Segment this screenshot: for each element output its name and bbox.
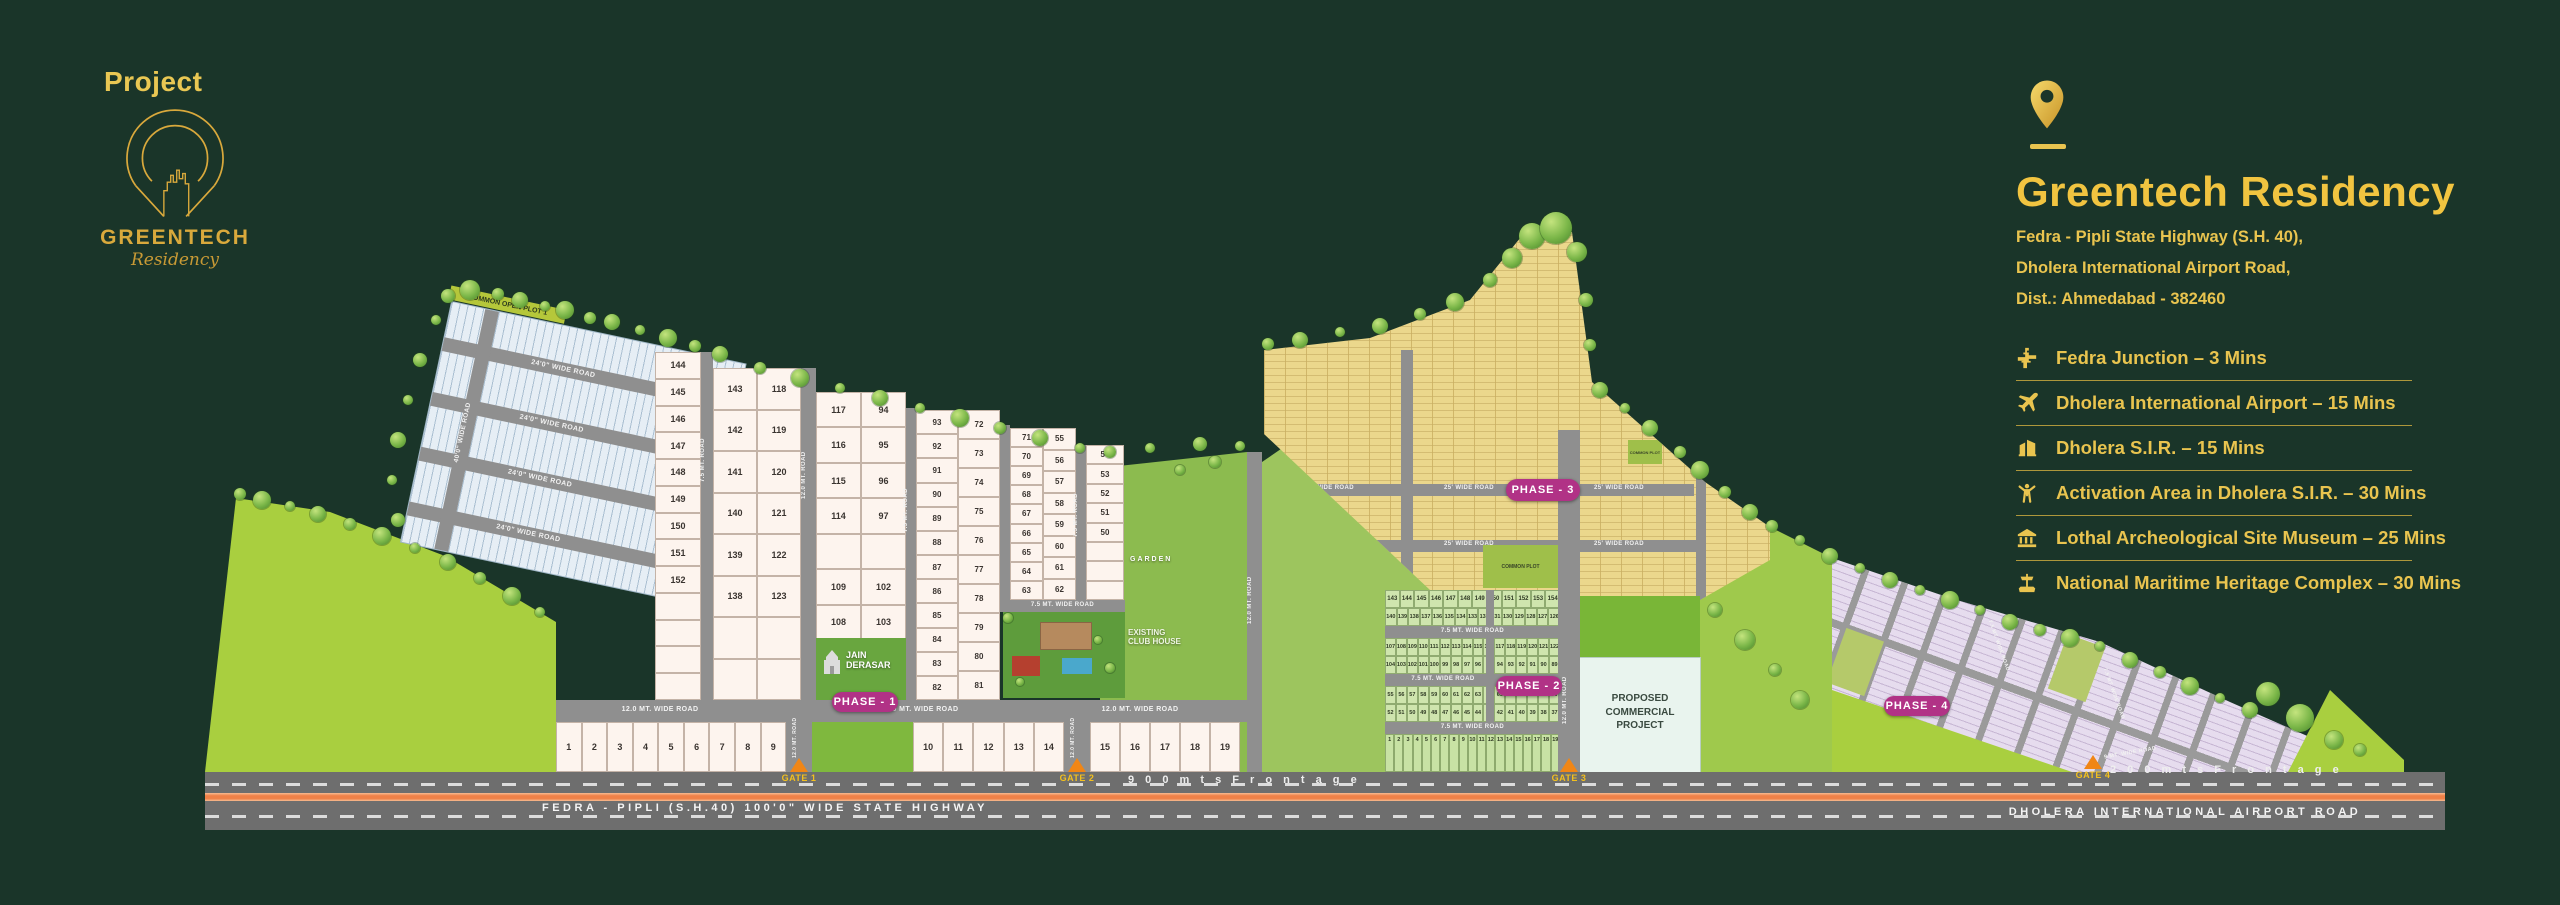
- road-label: 7.5 MT. ROAD: [1073, 480, 1087, 550]
- plot-cell: 78: [958, 584, 1000, 613]
- tree-icon: [535, 607, 545, 617]
- plot-cell: 149: [1472, 590, 1487, 608]
- plot-cell: 127: [1537, 608, 1549, 626]
- plot-cell: [861, 534, 906, 569]
- tree-icon: [1592, 382, 1608, 398]
- phase-4-badge: PHASE - 4: [1884, 696, 1950, 716]
- tree-icon: [1483, 273, 1497, 287]
- plot-column: 117116115114109108: [816, 392, 861, 640]
- plot-cell: 116: [816, 427, 861, 462]
- common-plot-zone: COMMON PLOT: [1628, 440, 1662, 464]
- plot-cell: 15: [1090, 722, 1120, 772]
- plot-cell: 138: [1408, 608, 1420, 626]
- tree-icon: [1414, 308, 1426, 320]
- tree-icon: [1209, 456, 1221, 468]
- plot-cell: 13: [1495, 734, 1504, 772]
- tree-icon: [1584, 339, 1596, 351]
- median-strip: [205, 793, 2445, 801]
- tree-icon: [1235, 441, 1245, 451]
- plot-cell: 117: [816, 392, 861, 427]
- plot-cell: 77: [958, 555, 1000, 584]
- road-label: 7.5 MT. WIDE ROAD: [1395, 724, 1550, 738]
- plot-cell: 96: [861, 463, 906, 498]
- plot-cell: 38: [1538, 704, 1549, 722]
- plot-cell: 89: [916, 507, 958, 531]
- plot-cell: 102: [1407, 656, 1418, 674]
- tree-icon: [994, 422, 1006, 434]
- plot-cell: 83: [916, 652, 958, 676]
- gate-1-label: GATE 1: [775, 773, 823, 783]
- plot-cell: 128: [1525, 608, 1537, 626]
- plot-cell: 3: [607, 722, 633, 772]
- tree-icon: [1791, 691, 1809, 709]
- plot-cell: 147: [1443, 590, 1458, 608]
- plot-cell: 13: [1004, 722, 1034, 772]
- plot-cell: 56: [1043, 450, 1076, 472]
- plot-cell: [757, 659, 801, 701]
- tree-icon: [1105, 663, 1115, 673]
- gate-3-label: GATE 3: [1545, 773, 1593, 783]
- tree-icon: [2181, 677, 2199, 695]
- plot-cell: 119: [757, 410, 801, 452]
- gate-4-icon: [2084, 755, 2102, 769]
- plot-cell: 103: [861, 605, 906, 640]
- tree-icon: [441, 289, 455, 303]
- plot-row: 1516171819: [1090, 722, 1240, 772]
- tree-icon: [403, 395, 413, 405]
- list-item-label: Dholera S.I.R. – 15 Mins: [2056, 437, 2265, 459]
- plot-cell: 143: [713, 368, 757, 410]
- gate-2-icon: [1068, 758, 1086, 772]
- project-label: Project: [104, 66, 202, 98]
- list-item-sir: Dholera S.I.R. – 15 Mins: [2016, 426, 2412, 471]
- plot-cell: 41: [1505, 704, 1516, 722]
- plot-cell: 130: [1502, 608, 1514, 626]
- plot-cell: 80: [958, 642, 1000, 671]
- plot-cell: 6: [1431, 734, 1440, 772]
- tree-icon: [1262, 338, 1274, 350]
- plot-cell: 91: [916, 458, 958, 482]
- plot-cell: 139: [1397, 608, 1409, 626]
- plot-cell: 88: [916, 531, 958, 555]
- tree-icon: [512, 292, 528, 308]
- tree-icon: [410, 543, 420, 553]
- plot-cell: 50: [1086, 523, 1124, 542]
- airplane-icon: [2016, 390, 2046, 416]
- site-plan-poster: Project GREENTECH Residency Greentech Re…: [0, 0, 2560, 905]
- plot-cell: 12: [1486, 734, 1495, 772]
- tree-icon: [791, 369, 809, 387]
- activation-icon: [2016, 480, 2046, 506]
- plot-cell: [655, 646, 701, 673]
- gate-4-label: GATE 4: [2069, 770, 2117, 780]
- plot-cell: 52: [1385, 704, 1396, 722]
- plot-cell: 82: [916, 676, 958, 700]
- plot-cell: 84: [916, 628, 958, 652]
- road: [1401, 350, 1413, 590]
- plot-cell: 65: [1010, 543, 1043, 562]
- plot-cell: 136: [1432, 608, 1444, 626]
- tree-icon: [835, 383, 845, 393]
- plot-cell: 1: [1385, 734, 1394, 772]
- plot-column: 143142141140139138: [713, 368, 757, 700]
- plot-cell: 145: [655, 379, 701, 406]
- tree-icon: [391, 513, 405, 527]
- list-item-label: Activation Area in Dholera S.I.R. – 30 M…: [2056, 482, 2426, 504]
- road-label: 7.5 MT. ROAD: [700, 420, 714, 500]
- tree-icon: [2215, 693, 2225, 703]
- tree-icon: [2034, 624, 2046, 636]
- plot-cell: 4: [1413, 734, 1422, 772]
- plot-column: 939291908988878685848382: [916, 410, 958, 700]
- plot-cell: 52: [1086, 484, 1124, 503]
- address-line-3: Dist.: Ahmedabad - 382460: [2016, 284, 2225, 315]
- plot-cell: [713, 617, 757, 659]
- plot-cell: 49: [1418, 704, 1429, 722]
- plot-column: 144145146147148149150151152: [655, 352, 701, 700]
- plot-cell: 104: [1385, 656, 1396, 674]
- plot-cell: 70: [1010, 447, 1043, 466]
- plot-cell: 15: [1514, 734, 1523, 772]
- plot-cell: 87: [916, 555, 958, 579]
- plot-cell: 137: [1420, 608, 1432, 626]
- existing-club-house-label: EXISTING CLUB HOUSE: [1128, 628, 1188, 646]
- tree-icon: [373, 527, 391, 545]
- tree-icon: [1915, 585, 1925, 595]
- road-label: 25' WIDE ROAD: [1594, 541, 1644, 547]
- tree-icon: [1579, 293, 1593, 307]
- tree-icon: [2286, 704, 2314, 732]
- club-court: [1012, 656, 1040, 676]
- plot-cell: 51: [1086, 503, 1124, 522]
- tree-icon: [604, 314, 620, 330]
- plot-cell: 81: [958, 671, 1000, 700]
- plot-cell: 48: [1429, 704, 1440, 722]
- plot-cell: 98: [1451, 656, 1462, 674]
- plot-cell: [757, 617, 801, 659]
- plot-cell: 100: [1429, 656, 1440, 674]
- plot-cell: 53: [1086, 464, 1124, 483]
- buildings-icon: [2016, 435, 2046, 461]
- tree-icon: [2154, 666, 2166, 678]
- plot-cell: 108: [816, 605, 861, 640]
- jain-derasar-label: JAIN DERASAR: [846, 650, 904, 671]
- road: [1000, 425, 1010, 600]
- tree-icon: [1193, 437, 1207, 451]
- plot-cell: [655, 620, 701, 647]
- tree-icon: [872, 390, 888, 406]
- list-item-label: National Maritime Heritage Complex – 30 …: [2056, 572, 2461, 594]
- plot-cell: 67: [1010, 504, 1043, 523]
- tree-icon: [1708, 603, 1722, 617]
- tree-icon: [387, 475, 397, 485]
- plot-cell: 8: [735, 722, 761, 772]
- plot-cell: 46: [1451, 704, 1462, 722]
- frontage-left-label: 9 0 0 m t s F r o n t a g e: [1128, 774, 1361, 786]
- plot-cell: 147: [655, 432, 701, 459]
- common-plot-zone: COMMON PLOT: [1483, 545, 1558, 588]
- plot-cell: 148: [1458, 590, 1473, 608]
- tree-icon: [1855, 563, 1865, 573]
- tree-icon: [1742, 504, 1758, 520]
- plot-cell: 140: [713, 493, 757, 535]
- tree-icon: [234, 488, 246, 500]
- tree-icon: [413, 353, 427, 367]
- tree-icon: [584, 312, 596, 324]
- plot-row: 143144145146147148149150151152153154: [1385, 590, 1560, 608]
- common-plot-zone: [2169, 827, 2226, 895]
- plot-cell: 95: [861, 427, 906, 462]
- tree-icon: [253, 491, 271, 509]
- tree-icon: [285, 501, 295, 511]
- plot-cell: 74: [958, 468, 1000, 497]
- plot-cell: 143: [1385, 590, 1400, 608]
- logo-name: GREENTECH: [100, 226, 250, 250]
- plot-cell: 138: [713, 576, 757, 618]
- plot-cell: 140: [1385, 608, 1397, 626]
- road-label: 7.5 MT. WIDE ROAD: [1000, 602, 1125, 616]
- plot-column: 94959697102103: [861, 392, 906, 640]
- road-label: 7.5 MT. ROAD: [903, 470, 917, 550]
- road-label: 12.0 MT. ROAD: [1562, 660, 1576, 740]
- tree-icon: [1642, 420, 1658, 436]
- tree-icon: [1882, 572, 1898, 588]
- plot-column: 5556575859606162: [1043, 428, 1076, 600]
- road: [906, 408, 916, 700]
- plot-cell: 11: [1477, 734, 1486, 772]
- tree-icon: [1567, 242, 1587, 262]
- plot-cell: 75: [958, 497, 1000, 526]
- address-line-2: Dholera International Airport Road,: [2016, 253, 2290, 284]
- plot-cell: 146: [655, 406, 701, 433]
- logo-tagline: Residency: [100, 250, 250, 270]
- plot-cell: 144: [1400, 590, 1415, 608]
- tree-icon: [2002, 614, 2018, 630]
- plot-cell: 120: [757, 451, 801, 493]
- plot-cell: [655, 593, 701, 620]
- plot-column: 72737475767778798081: [958, 410, 1000, 700]
- tree-icon: [1766, 520, 1778, 532]
- plot-cell: 62: [1043, 579, 1076, 601]
- plot-cell: 39: [1527, 704, 1538, 722]
- plot-cell: 9: [1459, 734, 1468, 772]
- tree-icon: [1032, 430, 1048, 446]
- plot-cell: 59: [1043, 514, 1076, 536]
- pin-underline: [2030, 144, 2066, 149]
- tree-icon: [951, 409, 969, 427]
- tree-icon: [460, 280, 480, 300]
- tree-icon: [1769, 664, 1781, 676]
- plot-cell: 14: [1505, 734, 1514, 772]
- state-highway-name: FEDRA - PIPLI (S.H.40) 100'0" WIDE STATE…: [445, 802, 1085, 814]
- plot-cell: 73: [958, 439, 1000, 468]
- common-plot-zone: [1827, 628, 1884, 696]
- plot-cell: 79: [958, 613, 1000, 642]
- tree-icon: [1292, 332, 1308, 348]
- plot-row: 12345678910111213141516171819: [1385, 734, 1560, 772]
- gate-3-icon: [1560, 758, 1578, 772]
- tree-icon: [2122, 652, 2138, 668]
- plot-cell: 146: [1429, 590, 1444, 608]
- tree-icon: [2325, 731, 2343, 749]
- plot-cell: 2: [1394, 734, 1403, 772]
- lawn-plot: [812, 722, 913, 772]
- tree-icon: [556, 301, 574, 319]
- plot-cell: 44: [1473, 704, 1484, 722]
- tree-icon: [503, 587, 521, 605]
- list-item-label: Dholera International Airport – 15 Mins: [2056, 392, 2396, 414]
- tree-icon: [1674, 446, 1686, 458]
- plot-cell: 51: [1396, 704, 1407, 722]
- club-building: [1040, 622, 1092, 650]
- plot-cell: 47: [1440, 704, 1451, 722]
- proposed-commercial-label: PROPOSED COMMERCIAL PROJECT: [1584, 692, 1696, 733]
- plot-cell: 42: [1494, 704, 1505, 722]
- tree-icon: [440, 554, 456, 570]
- tree-icon: [1446, 293, 1464, 311]
- tree-icon: [431, 315, 441, 325]
- road-label: 12.0 MT. WIDE ROAD: [1080, 706, 1200, 720]
- tree-icon: [754, 362, 766, 374]
- list-item-museum: Lothal Archeological Site Museum – 25 Mi…: [2016, 516, 2412, 561]
- plot-cell: 10: [913, 722, 943, 772]
- plot-cell: [1086, 542, 1124, 561]
- plot-cell: 96: [1473, 656, 1484, 674]
- plot-cell: 93: [1505, 656, 1516, 674]
- tree-icon: [1795, 535, 1805, 545]
- list-item-activation: Activation Area in Dholera S.I.R. – 30 M…: [2016, 471, 2412, 516]
- tree-icon: [1372, 318, 1388, 334]
- tree-icon: [1719, 486, 1731, 498]
- plot-cell: 101: [1418, 656, 1429, 674]
- plot-column: 118119120121122123: [757, 368, 801, 700]
- plot-cell: 85: [916, 603, 958, 627]
- tree-icon: [1540, 212, 1572, 244]
- list-item-airport: Dholera International Airport – 15 Mins: [2016, 381, 2412, 426]
- plot-cell: 16: [1523, 734, 1532, 772]
- frontage-right-label: 2 0 0 m t s F r o n t a g e: [2110, 764, 2343, 776]
- list-item-fedra-junction: Fedra Junction – 3 Mins: [2016, 336, 2412, 381]
- plot-cell: 122: [757, 534, 801, 576]
- plot-cell: 152: [655, 566, 701, 593]
- greentech-logo-icon: [100, 105, 250, 225]
- plot-cell: 102: [861, 569, 906, 604]
- road: [701, 352, 713, 700]
- location-pin-icon: [2026, 72, 2068, 138]
- gate-2-label: GATE 2: [1053, 773, 1101, 783]
- plot-cell: 129: [1513, 608, 1525, 626]
- plot-cell: 9: [761, 722, 787, 772]
- plot-cell: [1086, 561, 1124, 580]
- tree-icon: [310, 506, 326, 522]
- list-item-label: Lothal Archeological Site Museum – 25 Mi…: [2056, 527, 2446, 549]
- plot-cell: [655, 673, 701, 700]
- phase-2-badge: PHASE - 2: [1496, 676, 1562, 696]
- road-label: 25' WIDE ROAD: [1594, 485, 1644, 491]
- road-label: 12.0 MT. ROAD: [1247, 560, 1261, 640]
- road-label: 12.0 MT. ROAD: [801, 430, 815, 520]
- tree-icon: [1104, 446, 1116, 458]
- maritime-icon: [2016, 570, 2046, 596]
- plot-cell: 7: [709, 722, 735, 772]
- tree-icon: [1094, 636, 1102, 644]
- plot-cell: 7: [1440, 734, 1449, 772]
- address-line-1: Fedra - Pipli State Highway (S.H. 40),: [2016, 222, 2303, 253]
- tree-icon: [635, 325, 645, 335]
- plot-column: 5453525150: [1086, 445, 1124, 600]
- plot-cell: [713, 659, 757, 701]
- junction-icon: [2016, 345, 2046, 371]
- plot-cell: 91: [1527, 656, 1538, 674]
- plot-cell: 97: [1462, 656, 1473, 674]
- road-label: 12.0 MT. WIDE ROAD: [600, 706, 720, 720]
- road: [1486, 590, 1494, 734]
- plot-row: 1011121314: [913, 722, 1064, 772]
- plot-cell: 57: [1043, 471, 1076, 493]
- plot-cell: 17: [1150, 722, 1180, 772]
- plot-cell: 69: [1010, 466, 1043, 485]
- plot-cell: 90: [1538, 656, 1549, 674]
- tree-icon: [474, 572, 486, 584]
- tree-icon: [2095, 641, 2105, 651]
- plot-cell: 94: [1494, 656, 1505, 674]
- tree-icon: [2061, 629, 2079, 647]
- plot-cell: 60: [1043, 536, 1076, 558]
- plot-cell: 18: [1541, 734, 1550, 772]
- tree-icon: [492, 288, 504, 300]
- road: [1696, 478, 1706, 600]
- road-label: 7.5 MT. WIDE ROAD: [1395, 628, 1550, 642]
- plot-cell: 10: [1468, 734, 1477, 772]
- tree-icon: [390, 432, 406, 448]
- plot-cell: 148: [655, 459, 701, 486]
- tree-icon: [1941, 591, 1959, 609]
- plot-cell: 61: [1043, 557, 1076, 579]
- road-label: 12.0 MT. ROAD: [1070, 712, 1084, 764]
- plot-cell: 45: [1462, 704, 1473, 722]
- plot-cell: 142: [713, 410, 757, 452]
- plot-cell: 90: [916, 483, 958, 507]
- plot-row: 1401391381371361351341331321311301291281…: [1385, 608, 1560, 626]
- plot-cell: 123: [757, 576, 801, 618]
- plot-cell: 63: [1010, 581, 1043, 600]
- plot-cell: 58: [1043, 493, 1076, 515]
- club-pool: [1062, 658, 1092, 674]
- plot-cell: 2: [582, 722, 608, 772]
- museum-icon: [2016, 525, 2046, 551]
- commercial-lawn: [1580, 596, 1700, 658]
- road-label: 7.5 MT. WIDE ROAD: [1388, 676, 1498, 690]
- plot-cell: 17: [1532, 734, 1541, 772]
- tree-icon: [659, 329, 677, 347]
- list-item-label: Fedra Junction – 3 Mins: [2056, 347, 2267, 369]
- plot-cell: 1: [556, 722, 582, 772]
- plot-cell: 4: [633, 722, 659, 772]
- plot-cell: 66: [1010, 524, 1043, 543]
- landmark-list: Fedra Junction – 3 Mins Dholera Internat…: [2016, 336, 2412, 605]
- tree-icon: [1620, 403, 1630, 413]
- plot-cell: 40: [1516, 704, 1527, 722]
- plot-cell: 150: [655, 513, 701, 540]
- plot-cell: 86: [916, 579, 958, 603]
- road-label: 12.0 MT. ROAD: [792, 712, 806, 764]
- garden-label: GARDEN: [1130, 556, 1172, 564]
- plot-cell: 97: [861, 498, 906, 533]
- tree-icon: [1175, 465, 1185, 475]
- plot-cell: 135: [1443, 608, 1455, 626]
- page-title: Greentech Residency: [2016, 168, 2455, 216]
- plot-cell: 8: [1449, 734, 1458, 772]
